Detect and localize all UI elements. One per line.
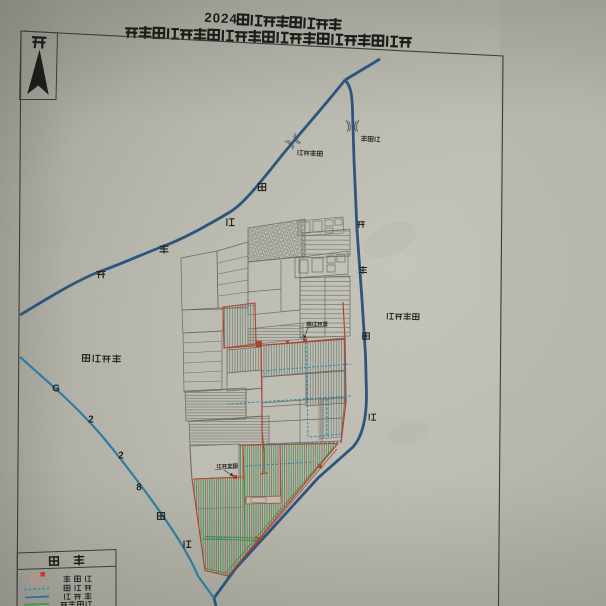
svg-text:2: 2	[204, 10, 212, 25]
svg-text:2: 2	[221, 11, 229, 26]
svg-text:2: 2	[88, 415, 94, 426]
svg-text:2: 2	[118, 451, 124, 462]
svg-text:G: G	[52, 384, 60, 395]
svg-text:0: 0	[212, 10, 220, 25]
svg-text:8: 8	[136, 483, 142, 494]
